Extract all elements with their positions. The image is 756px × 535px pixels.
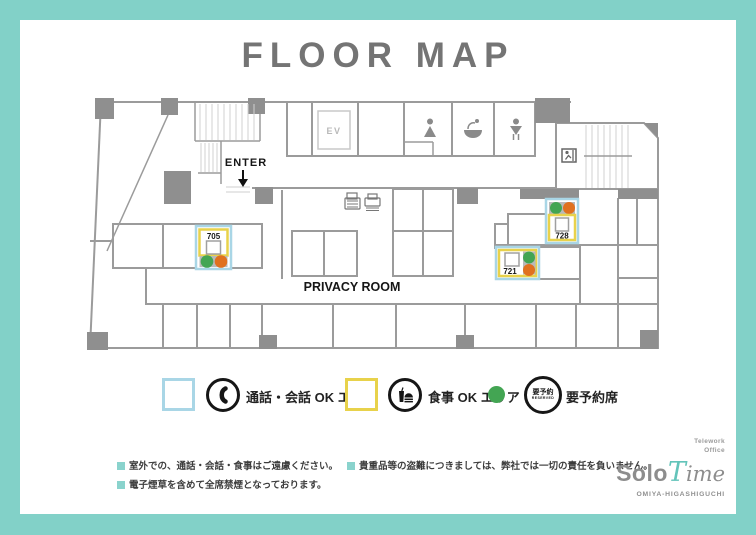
desk bbox=[505, 253, 519, 266]
reserved-badge-text: 要予約 bbox=[533, 389, 554, 396]
page-title: FLOOR MAP bbox=[20, 36, 736, 76]
note-no-outside-calls: 室外での、通話・会話・食事はご遠慮ください。 bbox=[117, 458, 338, 472]
reserved-seat-label: 要予約席 bbox=[566, 387, 618, 406]
sink-icon bbox=[464, 119, 482, 138]
mens-toilet-icon bbox=[424, 119, 436, 138]
room-badge-728: 728 bbox=[546, 199, 578, 243]
room-badge-705: 705 bbox=[196, 226, 231, 269]
room-number: 728 bbox=[555, 232, 569, 241]
desk bbox=[207, 241, 221, 254]
brand-logo: Telework Office SoloTime OMIYA-HIGASHIGU… bbox=[600, 438, 725, 498]
room-number: 705 bbox=[207, 232, 221, 241]
food-drink-icon bbox=[388, 378, 422, 412]
reserved-seat-dot-swatch bbox=[488, 386, 505, 403]
reserved-seat-dot bbox=[201, 255, 214, 268]
enter-arrow-icon bbox=[238, 170, 248, 187]
seat-dot bbox=[563, 202, 575, 214]
logo-wordmark: SoloTime bbox=[600, 457, 725, 488]
poster-page: FLOOR MAP bbox=[20, 20, 736, 514]
reserved-seat-dot bbox=[550, 202, 562, 214]
reserved-badge-icon: 要予約 RESERVED bbox=[524, 376, 562, 414]
food-ok-area-swatch bbox=[345, 378, 378, 411]
phone-icon bbox=[206, 378, 240, 412]
privacy-room-label: PRIVACY ROOM bbox=[304, 280, 401, 294]
elevator-label: EV bbox=[326, 126, 341, 136]
note-bullet bbox=[117, 481, 125, 489]
stairs-right bbox=[584, 125, 632, 188]
room-number: 721 bbox=[503, 267, 517, 276]
reserved-badge-subtext: RESERVED bbox=[532, 397, 554, 401]
note-no-smoking: 電子煙草を含めて全席禁煙となっております。 bbox=[117, 477, 327, 491]
seat-dot bbox=[215, 255, 228, 268]
floor-map-poster: { "page": { "title": "FLOOR MAP" }, "pla… bbox=[0, 0, 756, 535]
logo-tagline: Telework Office bbox=[600, 438, 725, 456]
call-ok-area-swatch bbox=[162, 378, 195, 411]
logo-location: OMIYA-HIGASHIGUCHI bbox=[600, 491, 725, 498]
note-bullet bbox=[347, 462, 355, 470]
elevator: EV bbox=[318, 111, 350, 149]
enter-label: ENTER bbox=[225, 157, 267, 169]
reserved-seat-dot bbox=[523, 252, 535, 264]
floor-plan: EV bbox=[85, 93, 665, 355]
womens-toilet-icon bbox=[510, 119, 522, 141]
emergency-exit-icon bbox=[562, 149, 576, 162]
note-bullet bbox=[117, 462, 125, 470]
room-badge-721: 721 bbox=[496, 247, 539, 279]
food-ok-area-label: 食事 OK エリア bbox=[428, 387, 520, 406]
seat-dot bbox=[523, 264, 535, 276]
printer-icons bbox=[345, 193, 380, 211]
desk bbox=[556, 218, 569, 231]
